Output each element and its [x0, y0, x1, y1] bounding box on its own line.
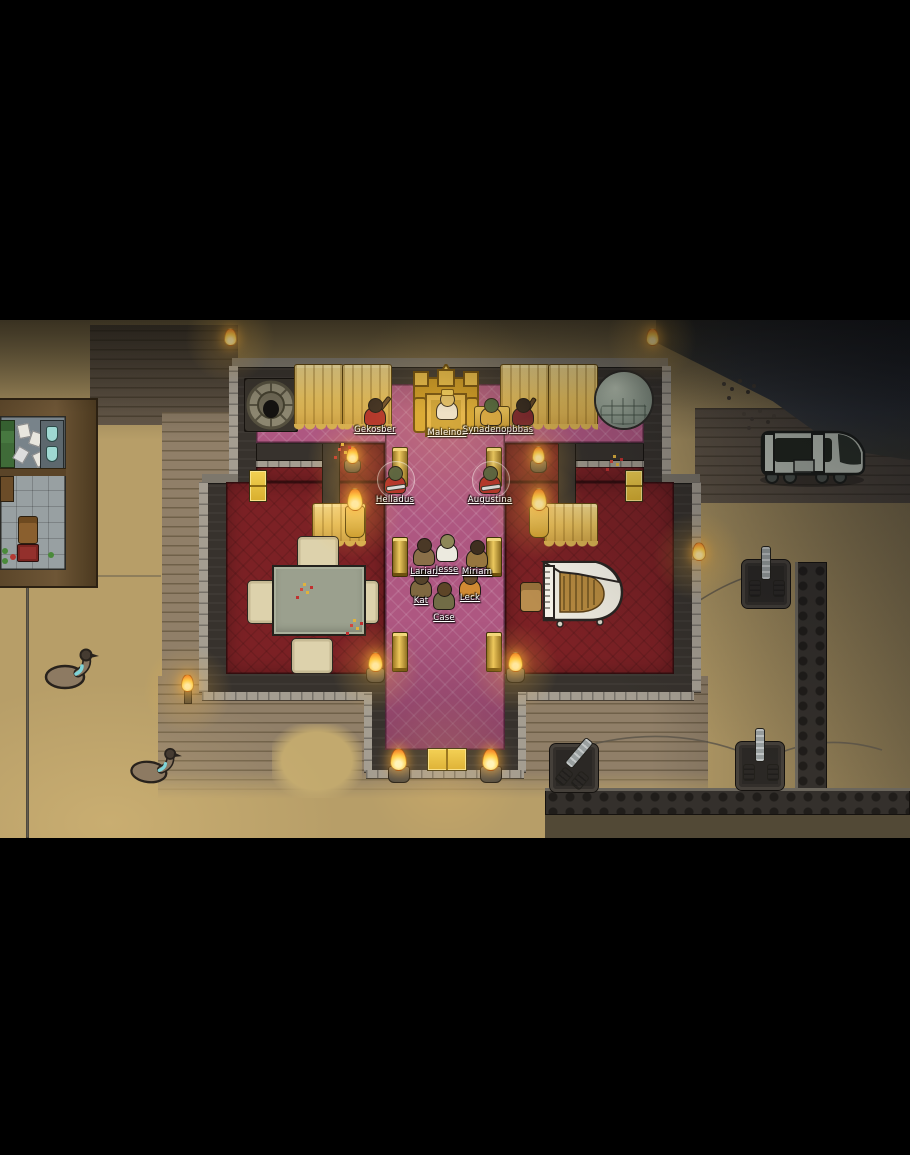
wall-face: [202, 692, 370, 700]
emu[interactable]: [40, 646, 100, 696]
confetti: [338, 448, 341, 451]
terrain-behind-wall: [545, 815, 910, 838]
wall-face: [692, 482, 701, 692]
pawn-miriam[interactable]: [466, 540, 488, 568]
red-chest[interactable]: [17, 544, 39, 562]
wooden-chair[interactable]: [18, 516, 38, 544]
pawn-synadenopbbas[interactable]: [480, 398, 502, 426]
wall-face: [256, 461, 322, 467]
wall-face: [229, 366, 238, 482]
flame-icon: [346, 446, 359, 464]
royal-drape[interactable]: [544, 503, 598, 542]
power-conduit-vertical[interactable]: [26, 574, 29, 838]
pawn-jesse[interactable]: [436, 534, 458, 562]
pawn-gekosber[interactable]: [364, 398, 386, 426]
pawn-royal-guard[interactable]: [512, 398, 534, 426]
flame-icon: [508, 652, 523, 672]
gold-column[interactable]: [392, 632, 408, 672]
confetti: [300, 588, 303, 591]
sphere-sculpture[interactable]: [596, 372, 652, 428]
pawn-label: Leck: [430, 593, 510, 603]
wall-torch[interactable]: [224, 328, 237, 346]
pawn-maleinos[interactable]: [436, 392, 458, 420]
pawn-label: Augustina: [450, 495, 530, 505]
game-screenshot: Gekosber Maleinos Synadenopbbas Helladus…: [0, 0, 910, 1155]
gold-door-main[interactable]: [427, 748, 467, 771]
wall-face: [364, 692, 372, 772]
gold-column[interactable]: [486, 632, 502, 672]
letterbox-bottom: [0, 838, 910, 1155]
wall-face: [518, 692, 526, 772]
pawn-label: Synadenopbbas: [458, 425, 538, 435]
room-divider-wall: [0, 468, 66, 476]
bookshelf[interactable]: [0, 420, 15, 468]
flame-icon: [482, 748, 499, 771]
mortar[interactable]: [742, 560, 790, 608]
wall-face: [662, 366, 671, 482]
pawn-helladus[interactable]: [384, 466, 406, 494]
flask-icon: [46, 446, 58, 462]
stored-items: [2, 548, 8, 554]
mortar[interactable]: [736, 742, 784, 790]
wall-torch[interactable]: [646, 328, 659, 346]
game-viewport[interactable]: Gekosber Maleinos Synadenopbbas Helladus…: [0, 320, 910, 838]
flame-icon: [532, 446, 545, 464]
confetti: [610, 460, 613, 463]
mortar[interactable]: [550, 744, 598, 792]
grand-piano[interactable]: [538, 558, 628, 630]
pawn-augustina[interactable]: [479, 466, 501, 494]
letterbox-top: [0, 0, 910, 320]
flask-icon: [46, 426, 58, 442]
perimeter-wall-vertical: [795, 562, 827, 790]
wall-torch[interactable]: [181, 674, 194, 692]
pawn-label: Miriam: [437, 567, 517, 577]
confetti: [350, 624, 353, 627]
armchair[interactable]: [291, 638, 333, 674]
pawn-label: Case: [404, 613, 484, 623]
pawn-larian[interactable]: [413, 538, 435, 566]
transport-vehicle[interactable]: [754, 426, 870, 488]
flame-icon: [390, 748, 407, 771]
flame-icon: [368, 652, 383, 672]
drum[interactable]: [244, 378, 298, 432]
gold-door[interactable]: [249, 470, 267, 502]
wall-face: [526, 692, 694, 700]
workbench[interactable]: [0, 476, 14, 502]
perimeter-wall-horizontal: [545, 788, 910, 815]
pawn-label: Gekosber: [335, 425, 415, 435]
royal-drape[interactable]: [548, 364, 598, 425]
wall-torch[interactable]: [692, 542, 706, 561]
wall-face: [199, 482, 208, 692]
royal-drape[interactable]: [294, 364, 344, 425]
gold-door[interactable]: [625, 470, 643, 502]
flame-icon: [531, 488, 547, 511]
emu[interactable]: [124, 741, 185, 793]
paper: [17, 423, 32, 439]
pawn-label: Helladus: [355, 495, 435, 505]
